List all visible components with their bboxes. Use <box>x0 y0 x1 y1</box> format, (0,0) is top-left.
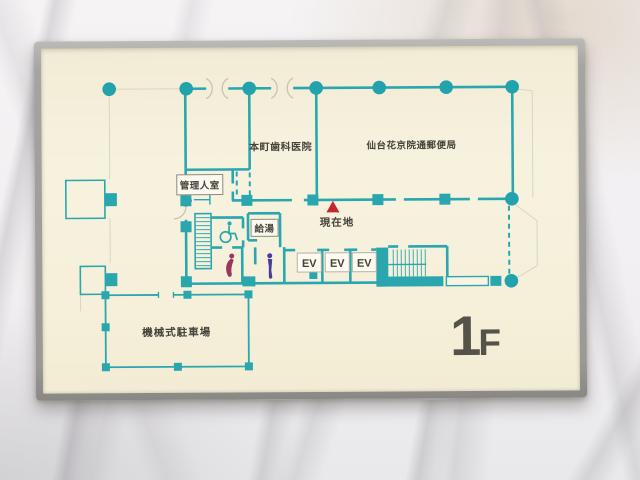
stairs-right-icon <box>388 249 426 276</box>
female-figure-icon <box>226 253 234 276</box>
exterior-structures <box>66 180 106 294</box>
stairs-left-icon <box>195 214 211 269</box>
floor-plan: 本町歯科医院 仙台花京院通郵便局 管理人室 給湯 機械式駐車場 現在地 EV E… <box>41 45 580 393</box>
wall-column-blocks <box>101 191 502 371</box>
marble-wall-veins-bottom <box>0 400 640 480</box>
male-figure-icon <box>267 253 272 279</box>
current-location-marker <box>326 201 339 213</box>
floor-number-suffix: F <box>478 322 501 363</box>
room-label-hot-water: 給湯 <box>255 223 275 235</box>
elevator-3-label: EV <box>357 258 372 270</box>
floor-map-board: 本町歯科医院 仙台花京院通郵便局 管理人室 給湯 機械式駐車場 現在地 EV E… <box>41 45 580 393</box>
wheelchair-icon <box>220 221 237 242</box>
floor-map-sign-frame: 本町歯科医院 仙台花京院通郵便局 管理人室 給湯 機械式駐車場 現在地 EV E… <box>34 38 587 400</box>
current-location-label: 現在地 <box>320 216 355 229</box>
elevator-2-label: EV <box>330 258 345 270</box>
side-door-arc-icon <box>174 207 186 219</box>
room-label-post-office: 仙台花京院通郵便局 <box>367 139 457 152</box>
floor-number-digit: 1 <box>450 304 482 367</box>
room-label-parking: 機械式駐車場 <box>142 326 211 339</box>
elevator-1-label: EV <box>302 258 317 270</box>
room-label-manager-room: 管理人室 <box>180 180 220 192</box>
room-label-dental-clinic: 本町歯科医院 <box>249 140 312 153</box>
floor-number: 1 F <box>450 304 501 367</box>
